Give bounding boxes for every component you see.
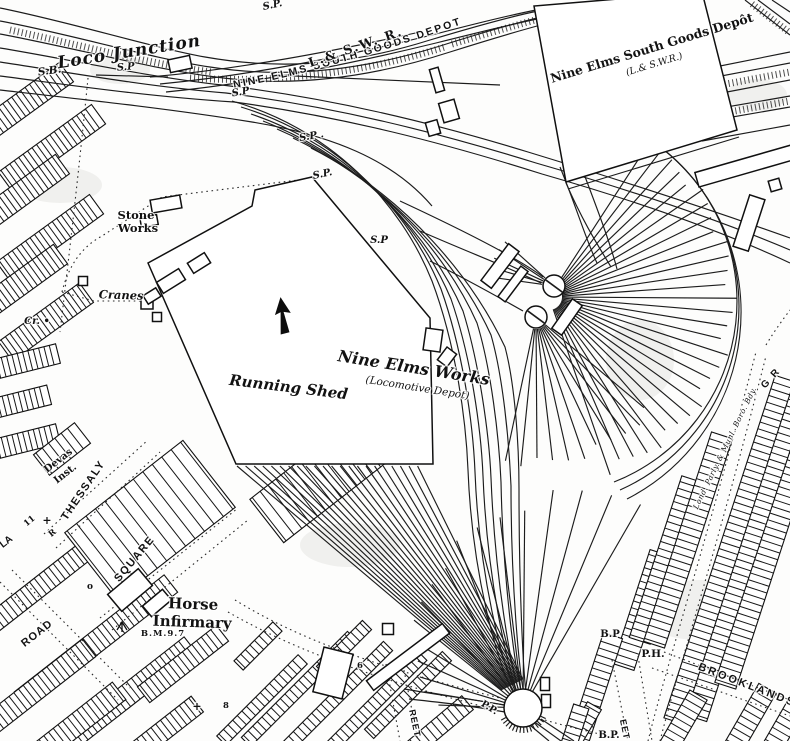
turntable-tick <box>516 726 518 732</box>
dotted-boundary <box>766 310 790 345</box>
map-label-stone-works-1: Stone <box>118 208 155 222</box>
map-label-boundary-post-2: B.P. <box>598 730 619 741</box>
map-label-signal-post-5: S.P. <box>312 167 334 182</box>
fan-track <box>528 491 582 690</box>
terraced-housing-block <box>234 622 282 670</box>
paper-speckle <box>727 79 787 111</box>
map-label-street-eet: EET <box>618 718 632 740</box>
fan-track <box>540 328 585 458</box>
map-building <box>150 195 182 213</box>
nine-elms-map: NINE ELMS SOUTH GOODS DEPOT Loco Junctio… <box>0 0 790 741</box>
turntable-tick <box>509 724 512 729</box>
map-building <box>153 313 162 322</box>
map-label-stone-works-2: Works <box>117 221 158 235</box>
map-label-signal-post-6: S.P <box>370 235 388 246</box>
map-building <box>542 695 551 708</box>
railway-track <box>758 0 790 24</box>
map-label-r-mark: R <box>47 527 60 540</box>
track-hatching <box>452 17 546 44</box>
map-label-cross-mark-2: + <box>192 700 201 713</box>
fan-track <box>536 329 537 458</box>
map-label-pp-mark: P.P. <box>479 699 500 718</box>
fan-track <box>561 241 728 293</box>
turntable-symbol <box>504 689 542 727</box>
map-building <box>541 678 550 691</box>
dotted-boundary <box>638 656 652 741</box>
map-building <box>168 55 192 72</box>
running-shed-building <box>148 177 433 464</box>
fan-track <box>505 329 533 461</box>
fan-track <box>526 490 554 689</box>
fan-track <box>561 232 713 293</box>
shed-siding-track <box>289 466 508 687</box>
fan-track <box>521 329 535 466</box>
turntable-tick <box>503 720 508 724</box>
railway-track <box>772 0 790 12</box>
turntable-tick <box>527 727 528 733</box>
map-label-eleven-mark: 11 <box>22 514 38 529</box>
shed-siding-track <box>280 466 507 688</box>
map-label-o-mark: o <box>87 582 93 592</box>
map-building <box>439 99 460 123</box>
map-building <box>383 624 394 635</box>
turntable-tick <box>520 727 521 733</box>
fan-track <box>562 297 737 298</box>
map-building <box>733 195 765 251</box>
map-label-street-reet: REET <box>407 709 423 738</box>
map-building <box>425 120 440 137</box>
fan-track <box>539 329 569 461</box>
map-building <box>429 67 444 93</box>
map-label-boundary-post-1: B.P <box>600 629 620 640</box>
map-label-public-house: P.H. <box>641 648 664 660</box>
fan-track <box>562 298 733 312</box>
turntable-tick <box>506 722 510 726</box>
railway-track <box>400 201 543 277</box>
map-building <box>79 277 88 286</box>
map-label-eight-mark: 8 <box>223 701 229 711</box>
map-label-benchmark-value: B.M.9.7 <box>141 629 185 639</box>
fan-track <box>562 285 725 297</box>
map-label-la-street: LA <box>0 534 15 551</box>
map-label-crane-abbrev: Cr. • <box>24 316 50 327</box>
map-label-cross-mark-1: + <box>42 514 51 527</box>
map-label-horse-infirmary-1: Horse <box>168 594 219 614</box>
map-label-signal-post-1: S.P <box>116 61 135 74</box>
map-label-six-mark: 6 <box>357 661 363 671</box>
map-label-signal-post-2: S.P. <box>262 0 284 13</box>
fan-track <box>523 511 525 689</box>
map-label-signal-post-3: S.P <box>231 85 251 99</box>
turntable-tick <box>501 717 506 720</box>
railway-track <box>536 723 561 741</box>
terraced-housing-block <box>0 385 52 419</box>
map-building <box>768 178 782 192</box>
map-label-cranes: Cranes <box>98 287 144 303</box>
map-label-road-street: ROAD <box>19 618 55 650</box>
map-building <box>423 328 443 352</box>
terraced-housing-block <box>65 440 236 599</box>
turntable-tick <box>540 716 545 719</box>
fan-track <box>542 327 611 440</box>
map-canvas: NINE ELMS SOUTH GOODS DEPOT Loco Junctio… <box>0 0 790 741</box>
turntable-tick <box>512 725 515 730</box>
